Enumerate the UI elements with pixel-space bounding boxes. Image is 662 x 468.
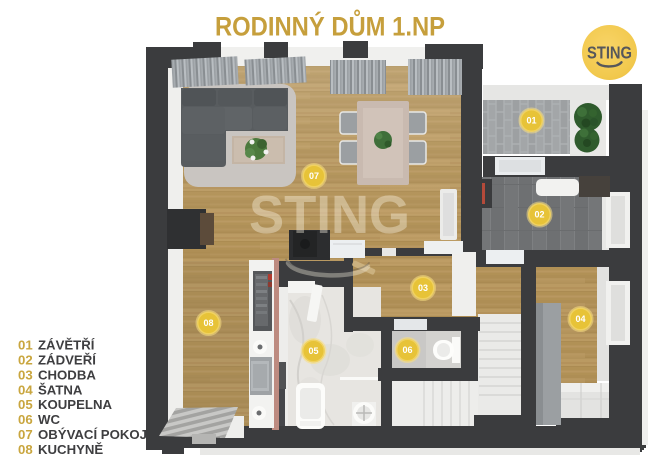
svg-text:CHODBA: CHODBA [38, 367, 96, 382]
svg-text:WC: WC [38, 412, 60, 427]
svg-text:03: 03 [418, 283, 428, 293]
svg-text:03: 03 [18, 367, 33, 382]
svg-text:05: 05 [308, 346, 318, 356]
svg-text:02: 02 [18, 352, 33, 367]
svg-text:06: 06 [18, 412, 33, 427]
svg-text:07: 07 [18, 427, 33, 442]
svg-text:STING: STING [587, 43, 632, 63]
svg-text:06: 06 [402, 345, 412, 355]
svg-text:KOUPELNA: KOUPELNA [38, 397, 112, 412]
svg-text:ZÁDVEŘÍ: ZÁDVEŘÍ [38, 352, 96, 367]
svg-text:07: 07 [309, 171, 319, 181]
svg-text:RODINNÝ DŮM 1.NP: RODINNÝ DŮM 1.NP [215, 9, 445, 42]
svg-text:01: 01 [18, 338, 33, 353]
svg-text:STING: STING [249, 185, 410, 245]
svg-text:08: 08 [18, 442, 33, 457]
svg-text:ZÁVĚTŘÍ: ZÁVĚTŘÍ [38, 338, 95, 353]
svg-text:KUCHYNĚ: KUCHYNĚ [38, 442, 103, 457]
svg-text:08: 08 [203, 318, 213, 328]
svg-text:02: 02 [534, 210, 544, 220]
svg-text:05: 05 [18, 397, 33, 412]
svg-text:01: 01 [526, 116, 536, 126]
svg-text:04: 04 [575, 314, 585, 324]
svg-text:OBÝVACÍ POKOJ: OBÝVACÍ POKOJ [38, 427, 147, 442]
svg-text:04: 04 [18, 382, 33, 397]
svg-text:ŠATNA: ŠATNA [38, 382, 83, 397]
